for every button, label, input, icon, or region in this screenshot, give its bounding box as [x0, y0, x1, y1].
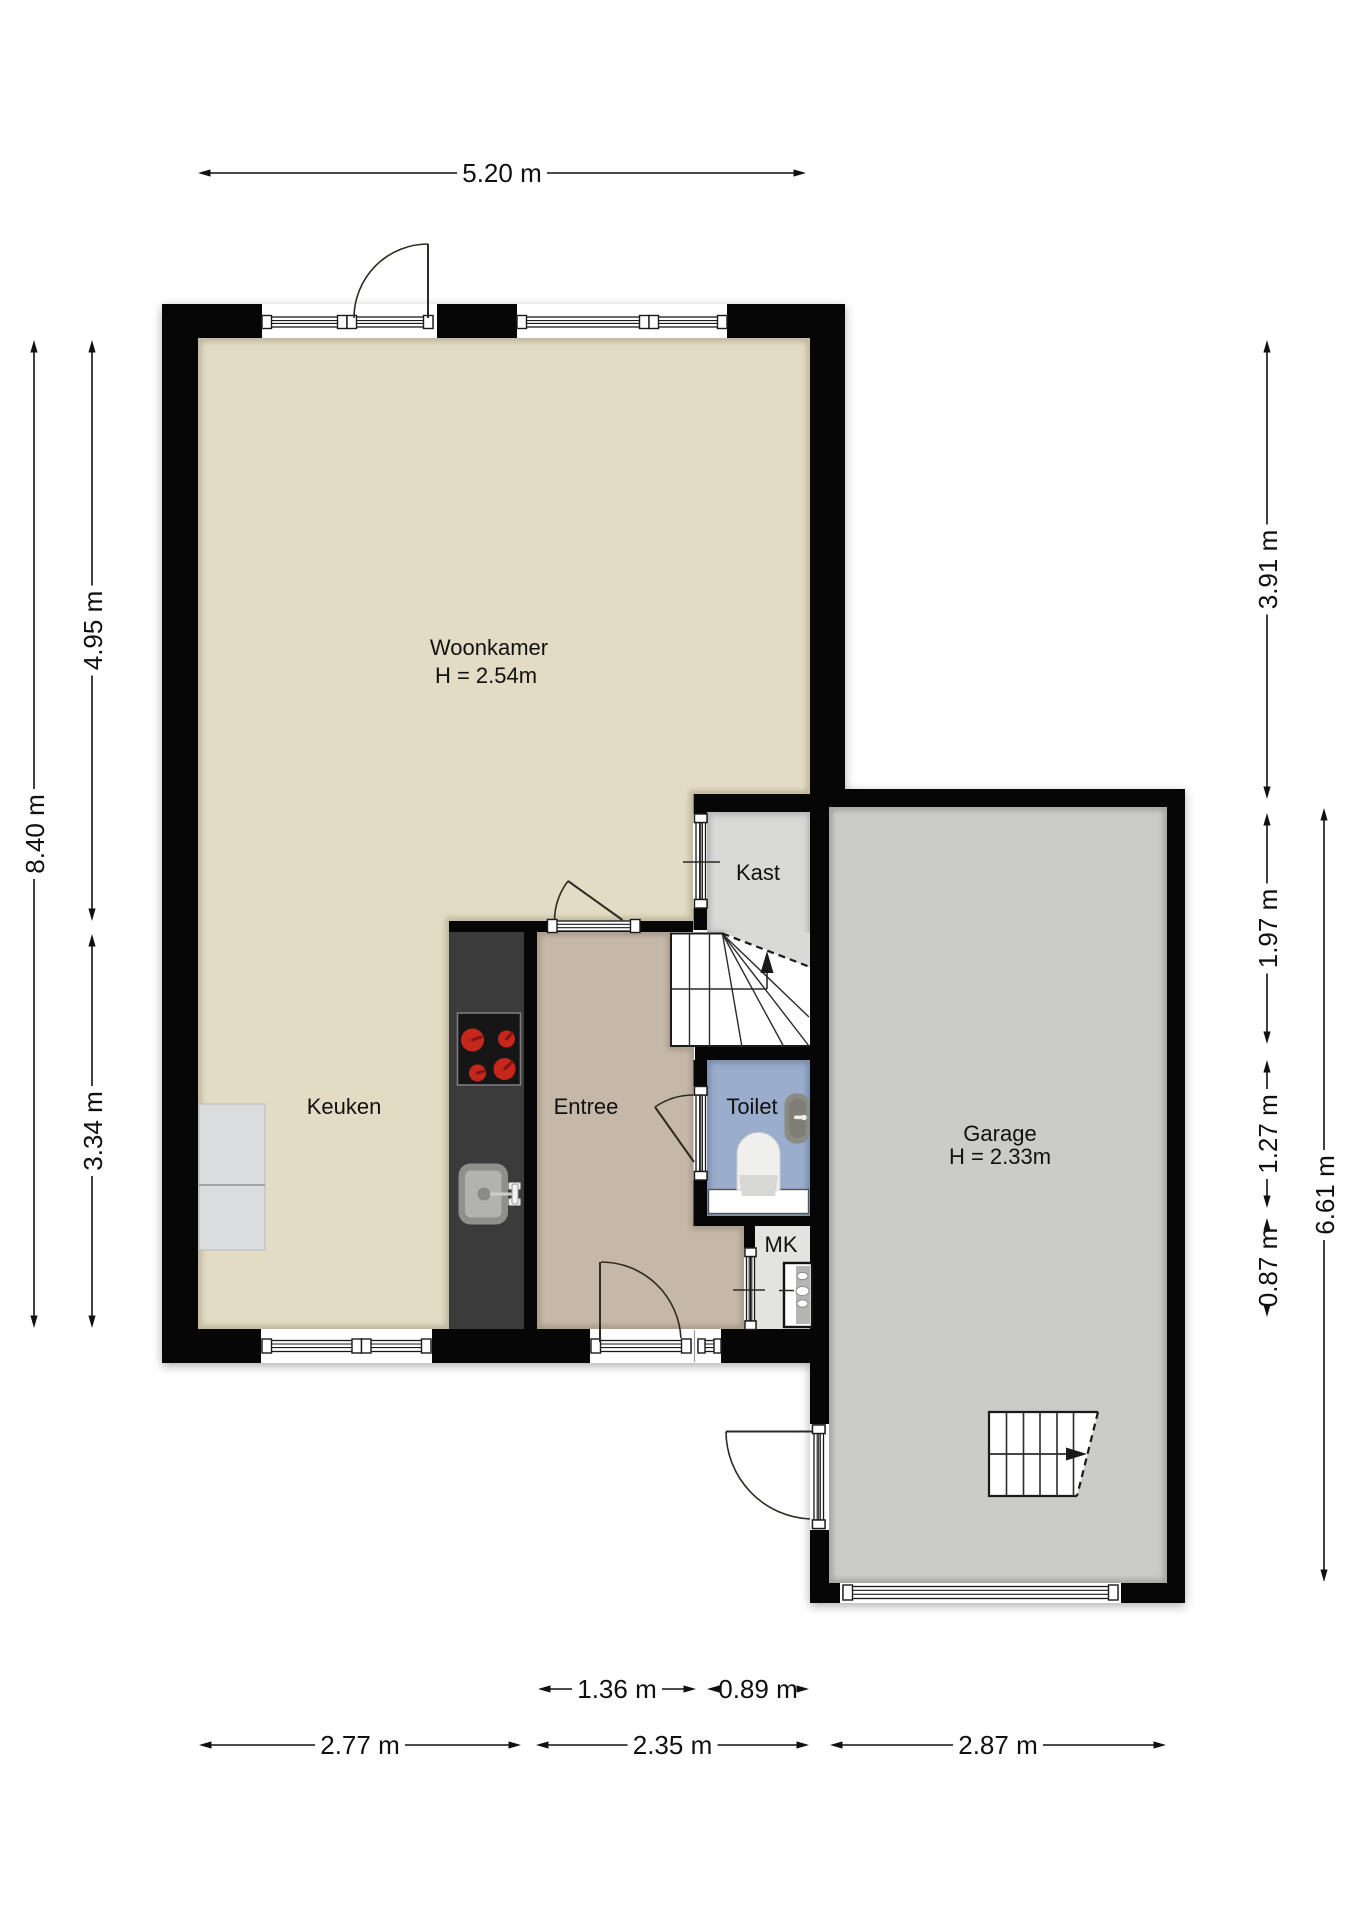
- svg-text:Garage: Garage: [963, 1121, 1036, 1146]
- svg-text:H = 2.54m: H = 2.54m: [435, 663, 537, 688]
- svg-text:2.35 m: 2.35 m: [633, 1730, 713, 1760]
- svg-text:6.61 m: 6.61 m: [1310, 1155, 1340, 1235]
- svg-text:3.34 m: 3.34 m: [78, 1091, 108, 1171]
- svg-text:3.91 m: 3.91 m: [1253, 530, 1283, 610]
- svg-text:H = 2.33m: H = 2.33m: [949, 1144, 1051, 1169]
- svg-text:2.87 m: 2.87 m: [958, 1730, 1038, 1760]
- svg-text:Toilet: Toilet: [726, 1094, 777, 1119]
- svg-text:1.97 m: 1.97 m: [1253, 889, 1283, 969]
- svg-text:2.77 m: 2.77 m: [320, 1730, 400, 1760]
- svg-text:MK: MK: [765, 1232, 798, 1257]
- svg-text:1.27 m: 1.27 m: [1253, 1094, 1283, 1174]
- svg-text:Woonkamer: Woonkamer: [430, 635, 548, 660]
- svg-text:0.87 m: 0.87 m: [1253, 1228, 1283, 1308]
- svg-text:8.40 m: 8.40 m: [20, 794, 50, 874]
- svg-text:4.95 m: 4.95 m: [78, 591, 108, 671]
- svg-text:5.20 m: 5.20 m: [462, 158, 542, 188]
- svg-text:Keuken: Keuken: [307, 1094, 382, 1119]
- svg-text:Entree: Entree: [554, 1094, 619, 1119]
- svg-text:0.89 m: 0.89 m: [718, 1674, 798, 1704]
- svg-text:Kast: Kast: [736, 860, 780, 885]
- svg-text:1.36 m: 1.36 m: [577, 1674, 657, 1704]
